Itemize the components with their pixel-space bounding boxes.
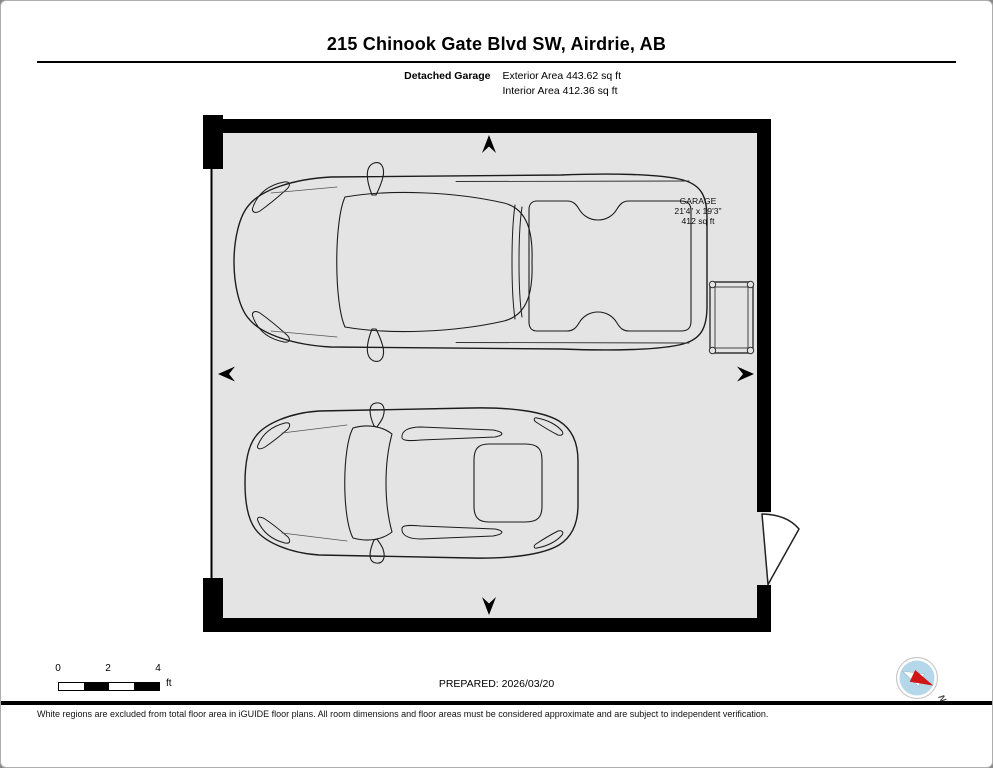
- entry-door-swing: [762, 514, 799, 585]
- room-name: GARAGE: [680, 196, 717, 206]
- wall-top: [204, 119, 771, 133]
- garage-floorplan: GARAGE 21'4" x 19'3" 412 sq ft: [196, 109, 816, 644]
- exterior-area: Exterior Area 443.62 sq ft: [503, 69, 993, 84]
- floorplan-page: 215 Chinook Gate Blvd SW, Airdrie, AB De…: [0, 0, 993, 768]
- page-title: 215 Chinook Gate Blvd SW, Airdrie, AB: [1, 34, 992, 55]
- room-dimensions: 21'4" x 19'3": [674, 206, 721, 216]
- wall-bottom: [204, 618, 771, 632]
- wall-right-lower: [757, 585, 771, 632]
- area-values: Exterior Area 443.62 sq ft Interior Area…: [497, 69, 993, 98]
- wall-right-upper: [757, 119, 771, 512]
- header-divider: [37, 61, 956, 63]
- disclaimer-text: White regions are excluded from total fl…: [37, 709, 976, 719]
- interior-area: Interior Area 412.36 sq ft: [503, 84, 993, 99]
- room-area: 412 sq ft: [682, 216, 716, 226]
- table-leg: [747, 281, 753, 287]
- area-summary: Detached Garage Exterior Area 443.62 sq …: [1, 69, 992, 98]
- floor-label: Detached Garage: [1, 69, 497, 98]
- table-leg: [709, 347, 715, 353]
- prepared-date: PREPARED: 2026/03/20: [1, 678, 992, 690]
- scale-tick-2: 2: [105, 663, 111, 674]
- table-leg: [747, 347, 753, 353]
- scale-tick-4: 4: [155, 663, 161, 674]
- table-leg: [709, 281, 715, 287]
- scale-tick-0: 0: [55, 663, 61, 674]
- compass-icon: N: [895, 655, 949, 705]
- footer-divider: [1, 701, 992, 705]
